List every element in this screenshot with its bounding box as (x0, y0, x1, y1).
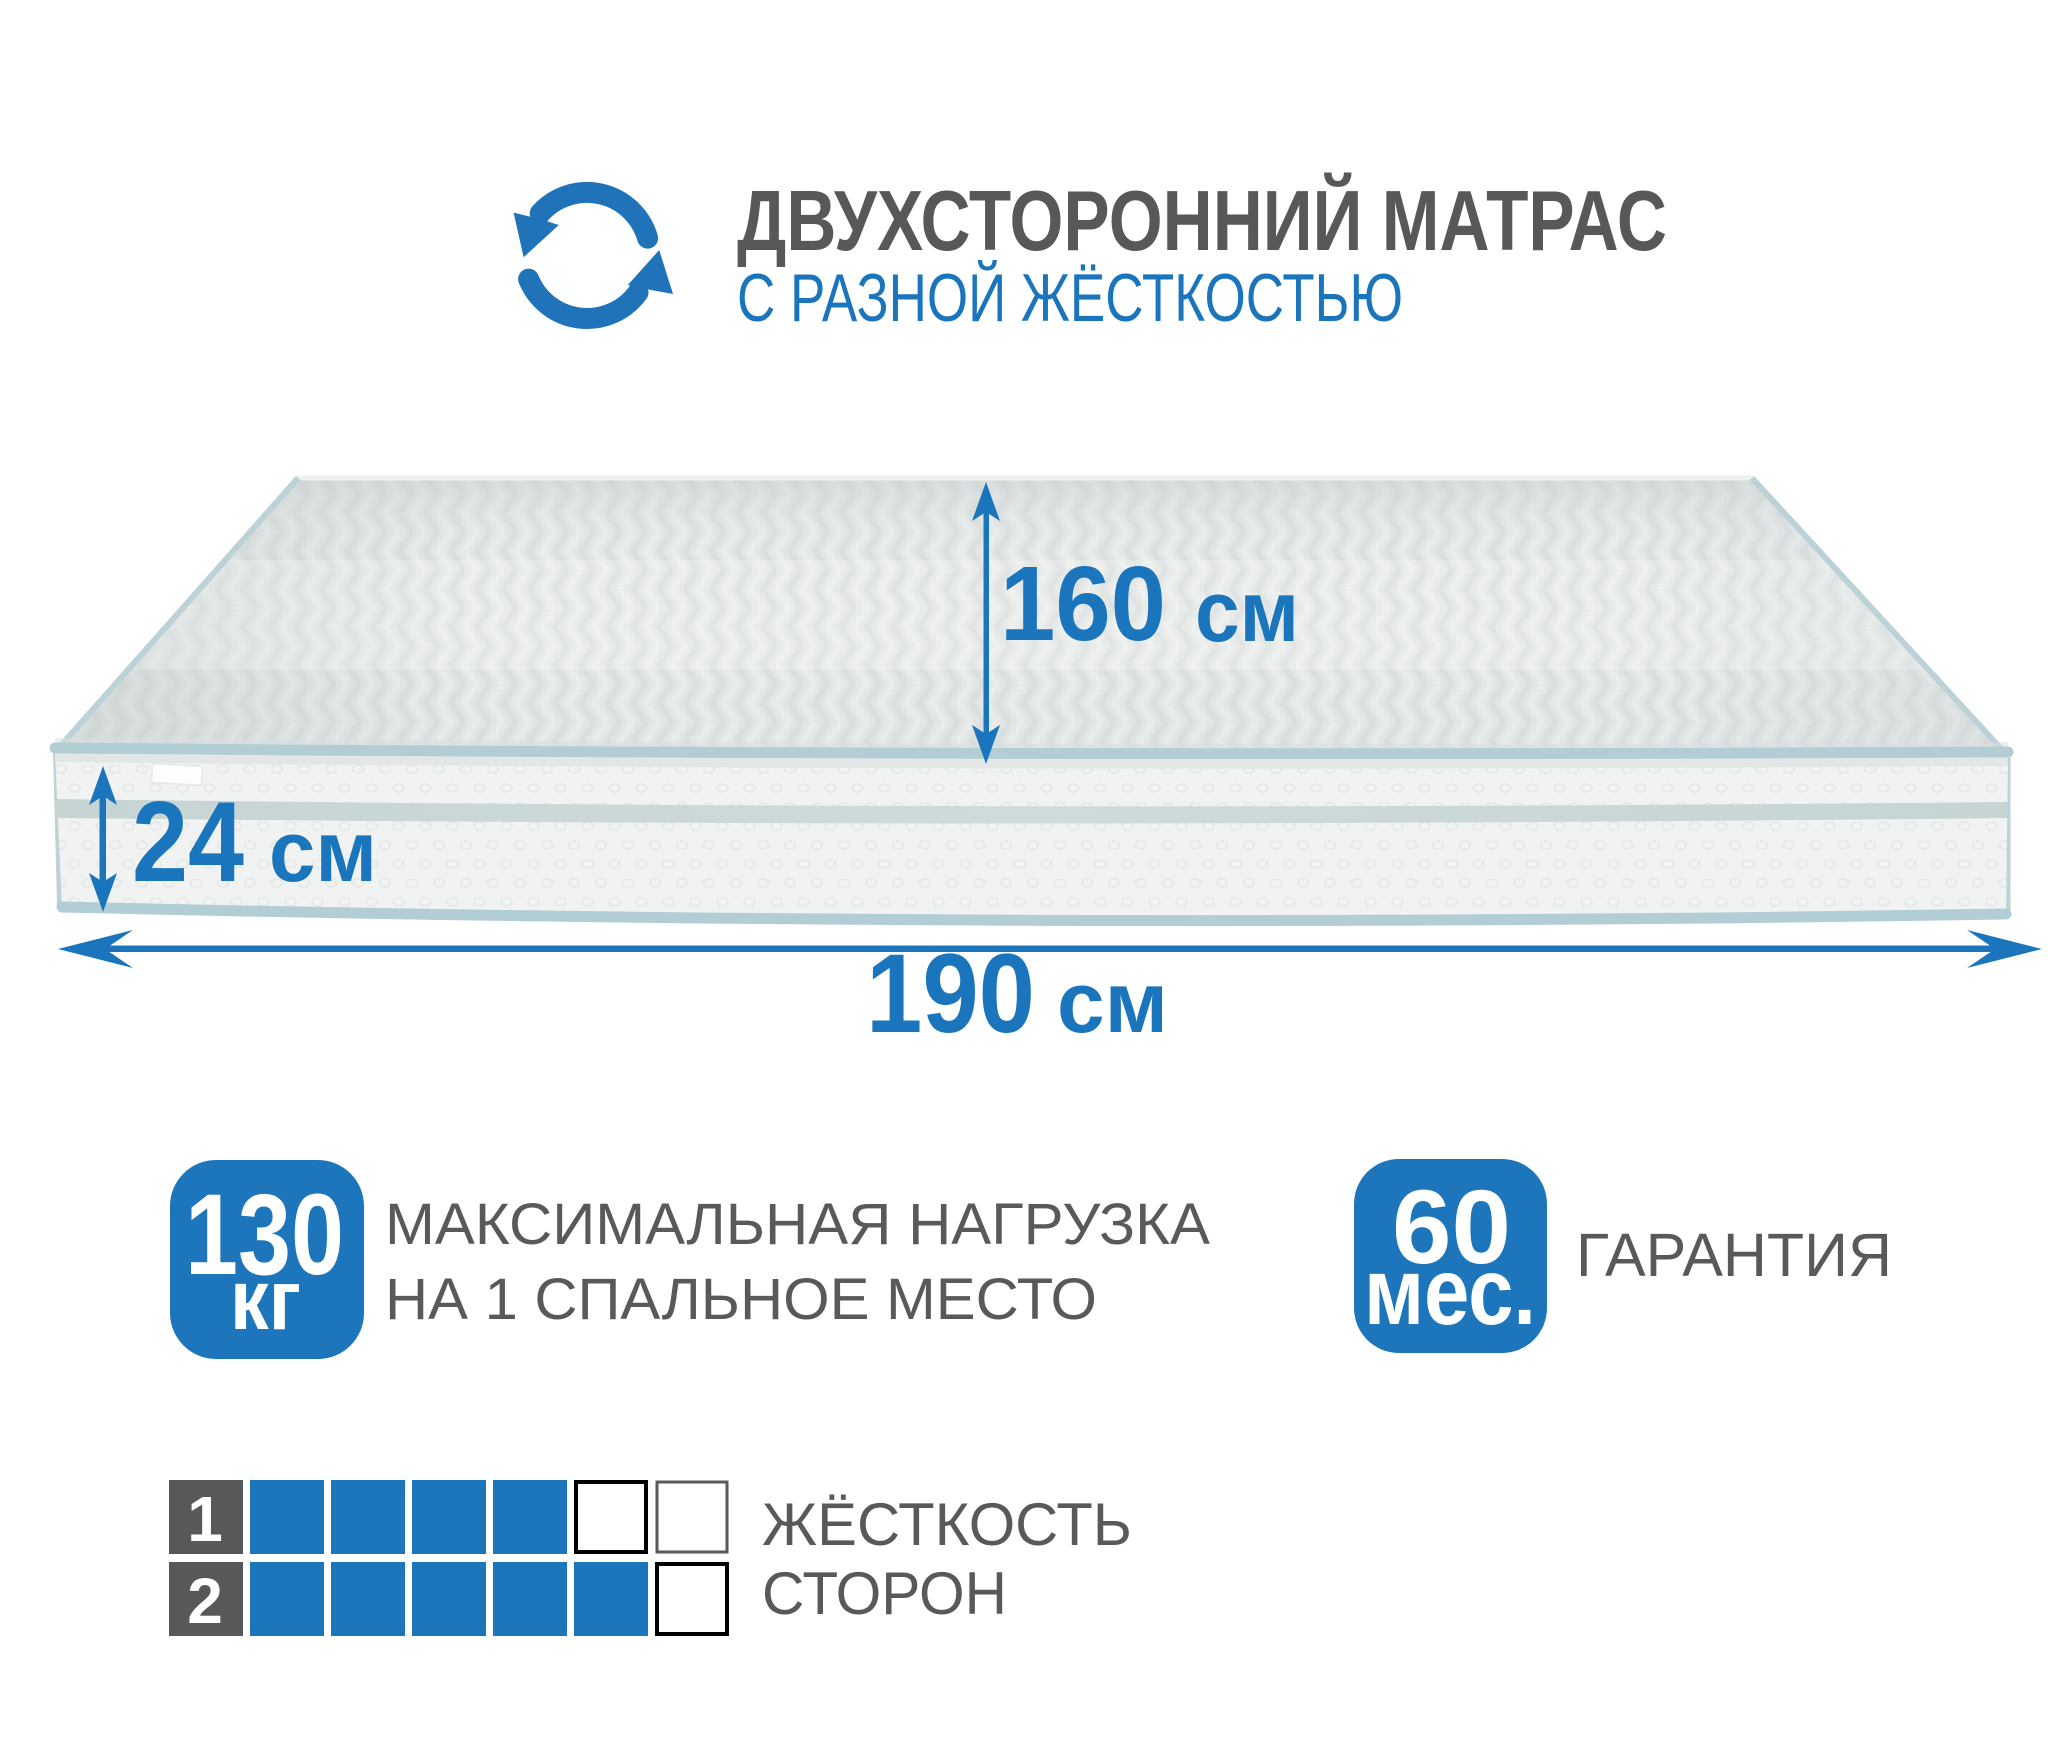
svg-text:кг: кг (230, 1253, 301, 1348)
svg-text:160: 160 (1000, 545, 1166, 663)
svg-text:МАКСИМАЛЬНАЯ НАГРУЗКА: МАКСИМАЛЬНАЯ НАГРУЗКА (385, 1192, 1210, 1257)
svg-text:24: 24 (132, 779, 244, 906)
svg-text:см: см (1195, 564, 1299, 660)
svg-text:190: 190 (866, 931, 1035, 1056)
svg-text:1: 1 (187, 1483, 223, 1555)
svg-text:см: см (1057, 955, 1168, 1051)
svg-text:ГАРАНТИЯ: ГАРАНТИЯ (1576, 1221, 1892, 1289)
svg-text:С РАЗНОЙ ЖЁСТКОСТЬЮ: С РАЗНОЙ ЖЁСТКОСТЬЮ (737, 259, 1403, 336)
svg-text:НА 1 СПАЛЬНОЕ МЕСТО: НА 1 СПАЛЬНОЕ МЕСТО (385, 1267, 1097, 1332)
svg-text:см: см (269, 804, 377, 900)
svg-text:ДВУХСТОРОННИЙ МАТРАС: ДВУХСТОРОННИЙ МАТРАС (737, 172, 1667, 269)
svg-text:СТОРОН: СТОРОН (762, 1560, 1007, 1627)
svg-text:2: 2 (187, 1565, 223, 1637)
svg-text:мес.: мес. (1364, 1239, 1536, 1345)
svg-text:ЖЁСТКОСТЬ: ЖЁСТКОСТЬ (762, 1491, 1132, 1558)
